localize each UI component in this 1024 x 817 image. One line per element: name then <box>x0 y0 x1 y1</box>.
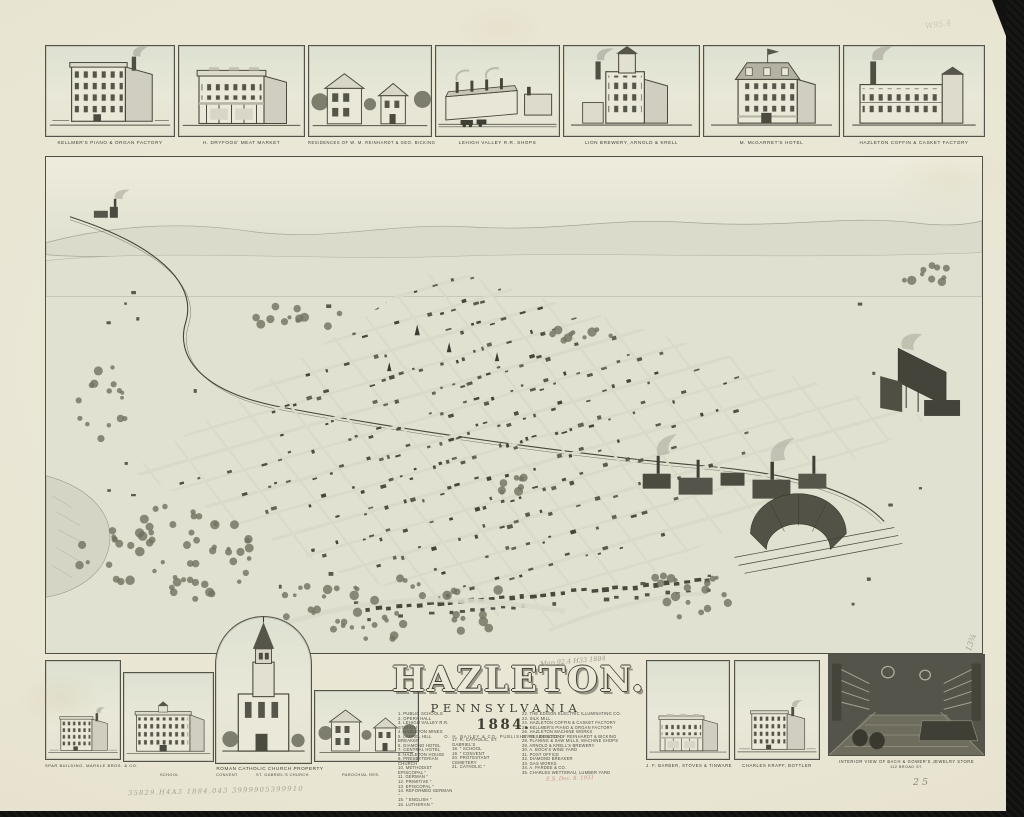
vignette-caption: SPAR BUILDING, MARKLE BROS. & CO. <box>45 760 121 768</box>
legend-column-2: 17. R. CATHOLIC, ST. GABRIEL'S 18. ″ SCH… <box>452 738 498 770</box>
factory-engraving <box>46 46 174 136</box>
vignette-catholic-school-panel <box>123 672 214 762</box>
vignette-caption: KELLMER'S PIANO & ORGAN FACTORY <box>45 137 175 145</box>
vignette-caption: M. McGARRET'S HOTEL <box>703 137 840 145</box>
vignette-catholic-school <box>123 672 214 762</box>
vignette-lehigh-valley-rr-shops <box>435 45 560 137</box>
vignette-caption: RESIDENCES OF W. M. REINHARDT & GEO. BIC… <box>308 137 432 145</box>
store-interior-engraving <box>829 655 984 755</box>
vignette-caption: CHARLES KRAPF, BOTTLER <box>734 760 820 768</box>
vignette-spar-building-panel <box>45 660 121 760</box>
storefront-engraving <box>647 661 729 759</box>
factory-engraving <box>844 46 984 136</box>
vignette-st-gabriels-church-panel <box>215 616 312 764</box>
vignette-spar-building: SPAR BUILDING, MARKLE BROS. & CO. <box>45 660 121 768</box>
vignette-residences-reinhardt-bicking <box>308 45 432 137</box>
pencil-sheet-number: 25 <box>913 777 931 788</box>
title-block: HAZLETON. PENNSYLVANIA 1884. O. H. BAILE… <box>392 656 644 784</box>
vignette-kellmer-piano-organ-factory <box>45 45 175 137</box>
residences-engraving <box>309 46 431 136</box>
vignette-caption: H. DRYFOOS' MEAT MARKET <box>178 137 305 145</box>
vignette-barber-stoves: J. F. BARBER, STOVES & TINWARE <box>646 660 730 768</box>
vignette-jewelry-store-interior: INTERIOR VIEW OF BACH & GOWER'S JEWELRY … <box>828 654 985 769</box>
building-engraving <box>735 661 819 759</box>
legend-column-1: 1. PUBLIC SCHOOLS 2. OPERA HALL 3. LEHIG… <box>398 712 454 807</box>
church-engraving <box>216 617 311 763</box>
storefront-engraving <box>179 46 304 136</box>
rail-shops-engraving <box>436 46 559 136</box>
brewery-engraving <box>564 46 699 136</box>
sub-caption-parochial-res: PAROCHIAL RES. <box>342 772 380 777</box>
hotel-engraving <box>704 46 839 136</box>
church-property-caption-group: ROMAN CATHOLIC CHURCH PROPERTY SCHOOL CO… <box>120 763 420 771</box>
vignette-krapf-bottler-panel <box>734 660 820 760</box>
vignette-lion-brewery <box>563 45 700 137</box>
vignette-jewelry-store-panel <box>828 654 985 756</box>
vignette-caption: HAZLETON COFFIN & CASKET FACTORY <box>843 137 985 145</box>
top-vignette-row: KELLMER'S PIANO & ORGAN FACTORY H. DRYFO… <box>45 45 985 145</box>
vignette-caption: INTERIOR VIEW OF BACH & GOWER'S JEWELRY … <box>828 756 985 764</box>
pencil-corner-note: W95.4 <box>925 18 952 31</box>
building-engraving <box>46 661 120 759</box>
map-title: HAZLETON. <box>392 662 644 697</box>
pencil-accession-number: 35829.H4A3 1884.043 3999905399910 <box>128 785 304 798</box>
photographed-map-sheet: KELLMER'S PIANO & ORGAN FACTORY H. DRYFO… <box>0 0 1024 817</box>
sub-caption-convent: CONVENT <box>216 772 238 777</box>
sub-caption-school: SCHOOL <box>160 772 179 777</box>
sub-caption-st-gabriels: ST. GABRIEL'S CHURCH <box>256 772 309 777</box>
church-property-caption: ROMAN CATHOLIC CHURCH PROPERTY <box>120 763 420 771</box>
vignette-address: 112 BROAD ST. <box>828 764 985 769</box>
vignette-dryfoos-meat-market <box>178 45 305 137</box>
vignette-st-gabriels-church <box>215 616 312 764</box>
birds-eye-view-of-hazleton <box>46 157 982 653</box>
vignette-caption: LION BREWERY, ARNOLD & KRELL <box>563 137 700 145</box>
vignette-caption: J. F. BARBER, STOVES & TINWARE <box>646 760 730 768</box>
vignette-coffin-casket-factory <box>843 45 985 137</box>
vignette-krapf-bottler: CHARLES KRAPF, BOTTLER <box>734 660 820 768</box>
vignette-mcgarret-hotel <box>703 45 840 137</box>
vignette-barber-stoves-panel <box>646 660 730 760</box>
school-engraving <box>124 673 213 761</box>
panorama-panel <box>45 156 983 654</box>
vignette-caption: LEHIGH VALLEY R.R. SHOPS <box>435 137 560 145</box>
lithograph-paper: KELLMER'S PIANO & ORGAN FACTORY H. DRYFO… <box>0 0 1006 811</box>
legend-column-3: 22. THE EDISON ELECTRIC ILLUMINATING CO.… <box>522 712 644 775</box>
